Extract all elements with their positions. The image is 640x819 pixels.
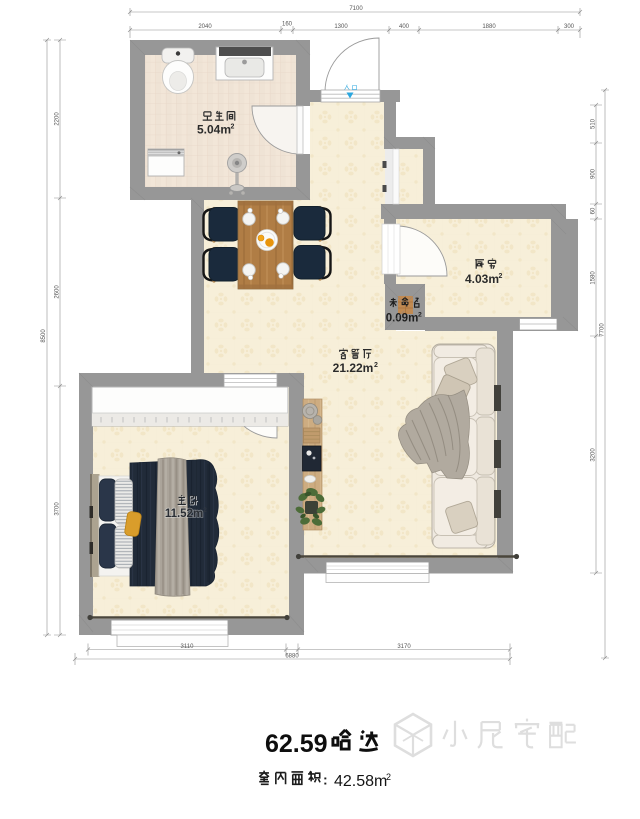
svg-text:2200: 2200 bbox=[55, 112, 61, 126]
svg-text:400: 400 bbox=[399, 24, 410, 30]
svg-text:2: 2 bbox=[374, 362, 378, 369]
svg-text:2600: 2600 bbox=[55, 285, 61, 299]
svg-text:2: 2 bbox=[231, 124, 235, 131]
svg-text:160: 160 bbox=[282, 22, 293, 28]
svg-text:3110: 3110 bbox=[181, 644, 195, 650]
svg-text:2040: 2040 bbox=[198, 24, 212, 30]
svg-text:8500: 8500 bbox=[41, 329, 47, 343]
svg-text:7100: 7100 bbox=[349, 6, 363, 12]
svg-text:510: 510 bbox=[591, 118, 597, 129]
svg-text:3170: 3170 bbox=[397, 644, 411, 650]
svg-text:300: 300 bbox=[564, 24, 575, 30]
svg-text:900: 900 bbox=[591, 168, 597, 179]
svg-text:6880: 6880 bbox=[285, 654, 299, 660]
svg-text:2: 2 bbox=[203, 507, 207, 514]
svg-text:7700: 7700 bbox=[600, 323, 606, 337]
svg-text:1580: 1580 bbox=[591, 271, 597, 285]
svg-text:2: 2 bbox=[499, 273, 503, 280]
svg-text::: : bbox=[323, 772, 328, 788]
svg-text:1300: 1300 bbox=[334, 24, 348, 30]
svg-text:2: 2 bbox=[418, 312, 422, 319]
svg-text:62.59: 62.59 bbox=[265, 730, 328, 758]
svg-text:1880: 1880 bbox=[482, 24, 496, 30]
svg-text:3700: 3700 bbox=[55, 502, 61, 516]
svg-text:2: 2 bbox=[386, 772, 391, 782]
svg-text:60: 60 bbox=[591, 207, 597, 214]
svg-text:4.03m: 4.03m bbox=[465, 272, 499, 286]
svg-text:3200: 3200 bbox=[591, 448, 597, 462]
svg-text:42.58m: 42.58m bbox=[334, 773, 387, 790]
svg-text:21.22m: 21.22m bbox=[333, 361, 374, 375]
svg-text:0.09m: 0.09m bbox=[386, 313, 419, 325]
svg-text:11.52m: 11.52m bbox=[165, 508, 203, 520]
svg-text:5.04m: 5.04m bbox=[197, 123, 231, 137]
